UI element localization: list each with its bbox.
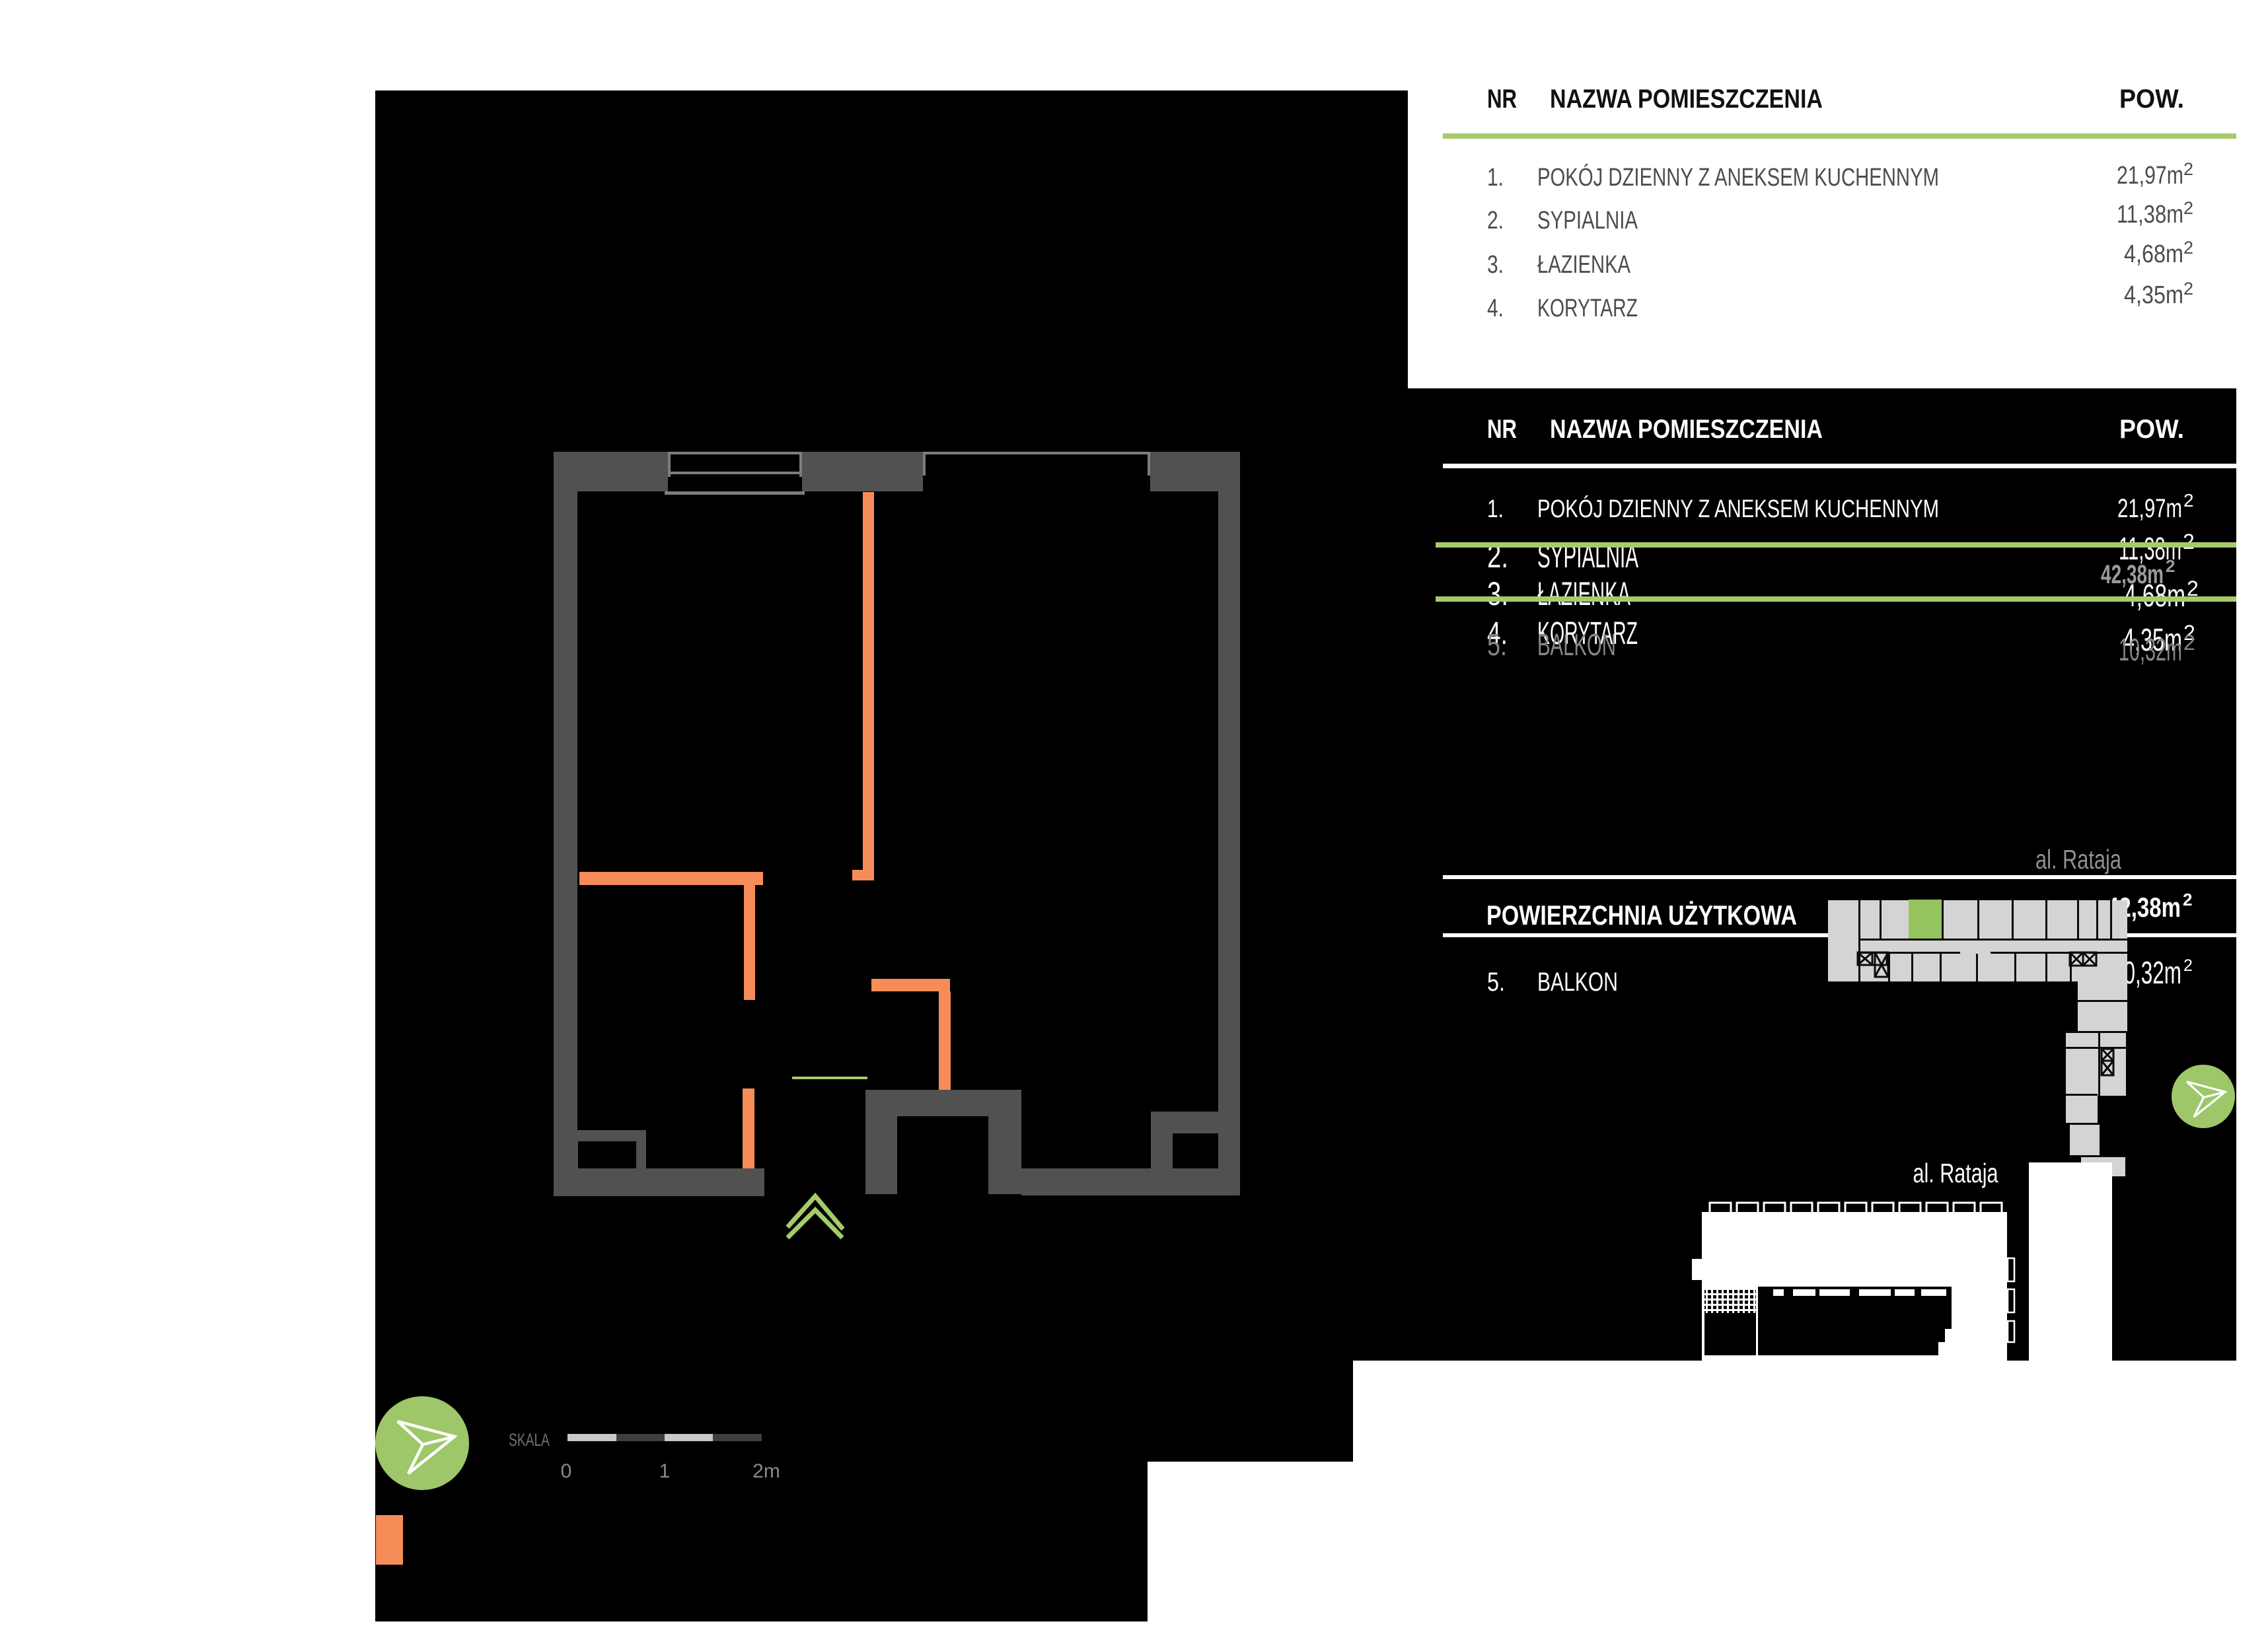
svg-text:5.: 5. bbox=[1487, 627, 1507, 662]
svg-text:NR: NR bbox=[1487, 85, 1517, 114]
svg-text:2: 2 bbox=[2183, 890, 2192, 909]
svg-text:2: 2 bbox=[2183, 159, 2193, 179]
svg-text:3.: 3. bbox=[1487, 575, 1508, 612]
svg-text:2: 2 bbox=[2183, 956, 2193, 975]
svg-text:2m: 2m bbox=[752, 1460, 780, 1482]
svg-text:1: 1 bbox=[659, 1460, 671, 1482]
svg-text:4,35m: 4,35m bbox=[2124, 281, 2183, 309]
svg-text:4.: 4. bbox=[1487, 295, 1504, 322]
svg-text:al. Rataja: al. Rataja bbox=[1913, 1158, 1998, 1188]
svg-text:POW.: POW. bbox=[2119, 85, 2184, 114]
svg-text:0: 0 bbox=[561, 1460, 572, 1482]
svg-text:POKÓJ DZIENNY Z ANEKSEM KUCHEN: POKÓJ DZIENNY Z ANEKSEM KUCHENNYM bbox=[1537, 163, 1939, 192]
svg-text:NAZWA POMIESZCZENIA: NAZWA POMIESZCZENIA bbox=[1550, 415, 1823, 444]
svg-text:2: 2 bbox=[2183, 238, 2193, 258]
svg-text:SYPIALNIA: SYPIALNIA bbox=[1537, 207, 1638, 234]
svg-text:2: 2 bbox=[2183, 198, 2193, 218]
svg-text:5.: 5. bbox=[1487, 968, 1505, 997]
svg-text:KORYTARZ: KORYTARZ bbox=[1537, 295, 1638, 322]
svg-text:BALKON: BALKON bbox=[1537, 627, 1616, 662]
svg-text:1.: 1. bbox=[1487, 164, 1504, 192]
svg-text:POWIERZCHNIA UŻYTKOWA: POWIERZCHNIA UŻYTKOWA bbox=[1486, 900, 1797, 931]
svg-text:SKALA: SKALA bbox=[509, 1430, 550, 1450]
svg-text:21,97m: 21,97m bbox=[2117, 162, 2183, 190]
svg-text:11,38m: 11,38m bbox=[2117, 201, 2183, 229]
svg-text:1.: 1. bbox=[1487, 495, 1504, 523]
svg-text:42,38m: 42,38m bbox=[2101, 560, 2164, 589]
svg-text:2: 2 bbox=[2183, 279, 2193, 299]
svg-text:2: 2 bbox=[2183, 631, 2195, 655]
svg-text:NR: NR bbox=[1487, 415, 1517, 444]
svg-text:NAZWA POMIESZCZENIA: NAZWA POMIESZCZENIA bbox=[1550, 85, 1823, 114]
svg-text:ŁAZIENKA: ŁAZIENKA bbox=[1537, 251, 1630, 279]
svg-text:2: 2 bbox=[2183, 530, 2195, 553]
svg-text:2: 2 bbox=[2166, 556, 2175, 576]
svg-text:2: 2 bbox=[2183, 490, 2194, 511]
svg-text:2.: 2. bbox=[1487, 207, 1504, 234]
svg-text:al. Rataja: al. Rataja bbox=[2035, 844, 2121, 874]
svg-text:POW.: POW. bbox=[2119, 415, 2184, 444]
svg-text:10,32m: 10,32m bbox=[2119, 633, 2182, 668]
svg-text:ŁAZIENKA: ŁAZIENKA bbox=[1537, 575, 1630, 612]
svg-text:21,97m: 21,97m bbox=[2117, 494, 2182, 523]
svg-text:3.: 3. bbox=[1487, 251, 1504, 279]
svg-text:POKÓJ DZIENNY Z ANEKSEM KUCHEN: POKÓJ DZIENNY Z ANEKSEM KUCHENNYM bbox=[1537, 495, 1939, 523]
svg-text:4,68m: 4,68m bbox=[2124, 240, 2183, 268]
svg-text:BALKON: BALKON bbox=[1537, 968, 1618, 997]
